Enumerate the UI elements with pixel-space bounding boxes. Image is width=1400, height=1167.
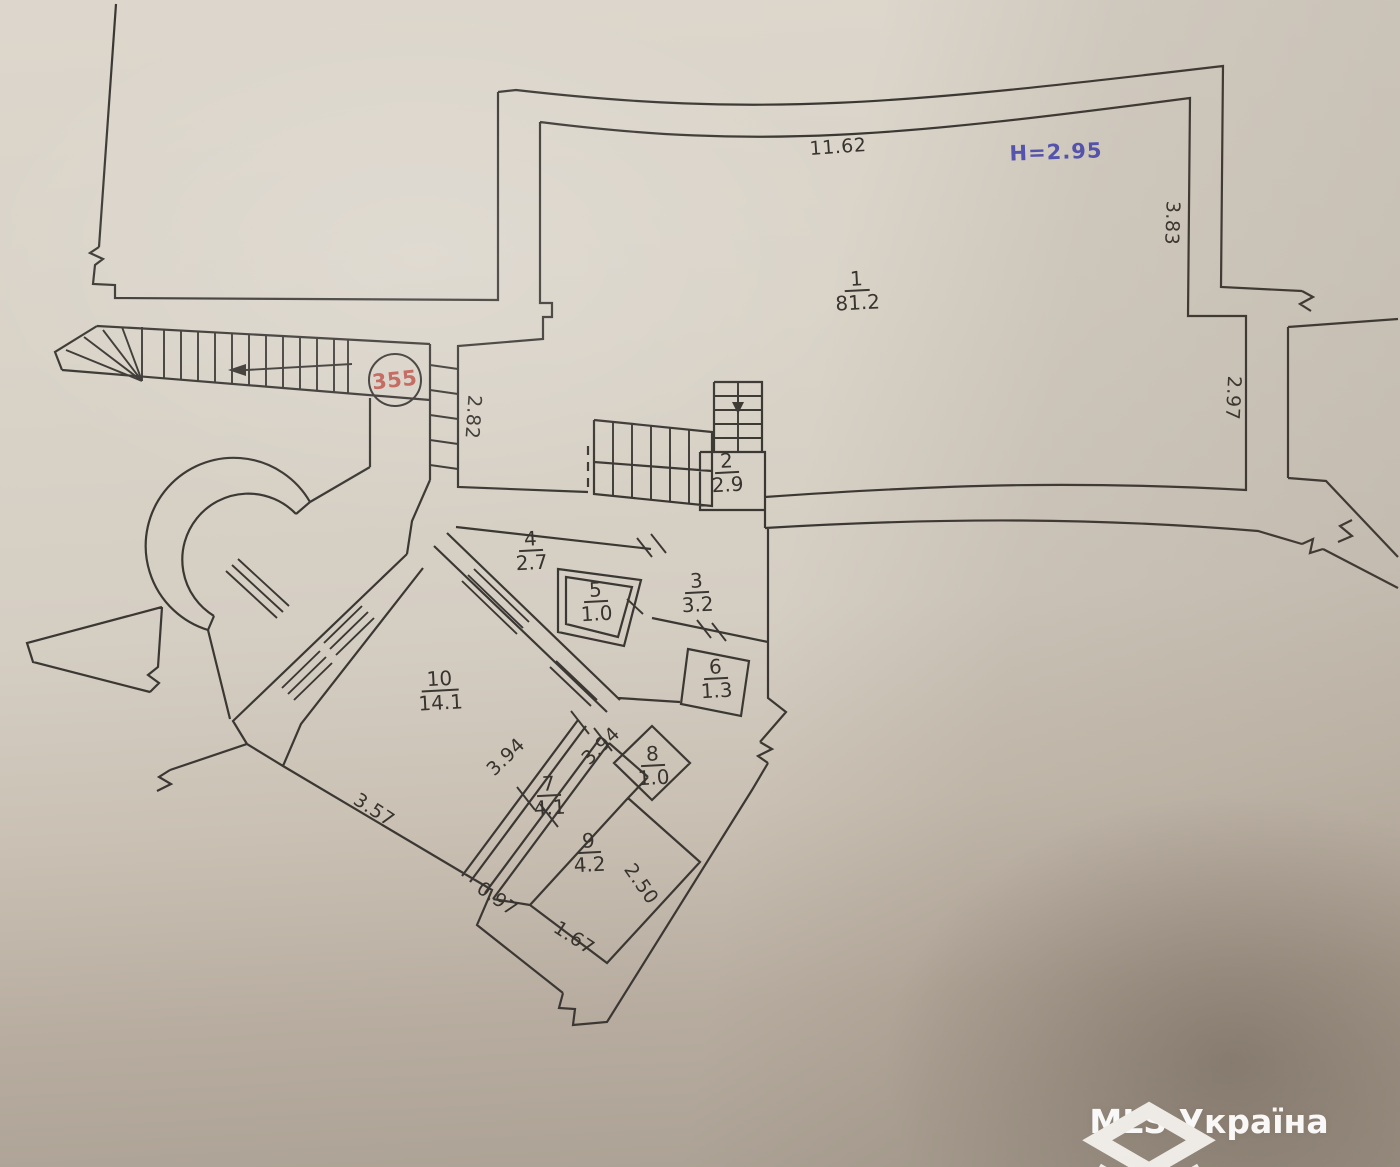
walls: [27, 4, 1398, 1025]
dimension-right-corridor: 2.97: [1221, 375, 1245, 420]
room-label-6: 6 1.3: [699, 656, 733, 703]
dimension-right-upper: 3.83: [1160, 200, 1184, 245]
room-label-5: 5 1.0: [579, 579, 613, 626]
room-label-3: 3 3.2: [680, 570, 714, 617]
mls-watermark: MLS Україна: [1064, 1098, 1354, 1141]
ceiling-height-note: H=2.95: [1009, 138, 1103, 165]
mls-logo-icon: [1064, 1098, 1234, 1167]
room-label-9: 9 4.2: [572, 830, 606, 877]
unit-number-circle: 355: [368, 353, 422, 407]
room-label-1: 1 81.2: [834, 267, 881, 314]
stair-treads: [66, 327, 762, 504]
unit-number: 355: [371, 366, 419, 395]
room-label-8: 8 1.0: [636, 743, 670, 790]
room-label-4: 4 2.7: [514, 528, 548, 575]
room-label-7: 7 4.1: [532, 773, 566, 820]
floorplan-photo: 1 81.2 2 2.9 3 3.2 4 2.7 5 1.0 6 1.3 7 4…: [0, 0, 1400, 1167]
dimension-entry-wall: 2.82: [460, 394, 485, 440]
dimension-top-wall: 11.62: [809, 134, 867, 160]
room-label-2: 2 2.9: [710, 450, 744, 497]
room-label-10: 10 14.1: [417, 667, 464, 714]
